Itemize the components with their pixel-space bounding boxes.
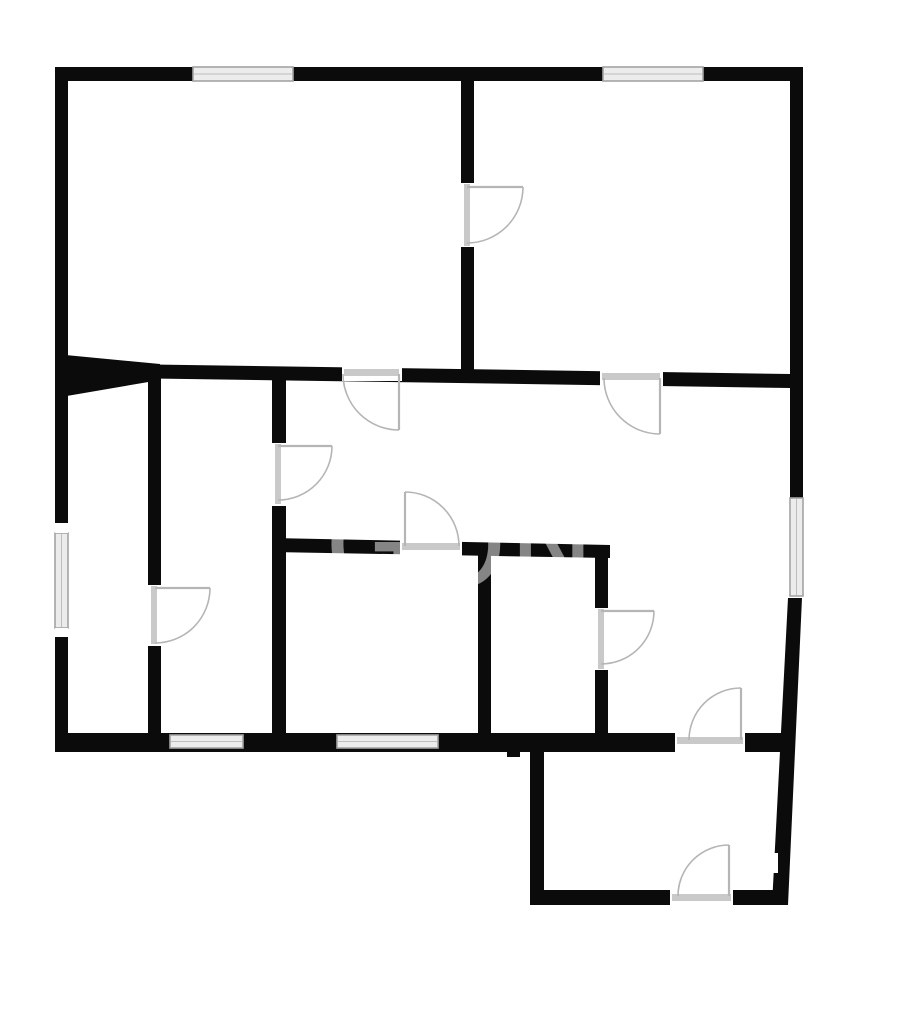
wall-segment (272, 376, 286, 733)
door-threshold (464, 184, 470, 246)
wall-segment (55, 67, 68, 752)
wall-notch (771, 853, 778, 873)
door-threshold (677, 737, 743, 744)
door-threshold (275, 444, 281, 504)
wall-notch (55, 523, 68, 533)
wall-notch (55, 628, 68, 637)
wall-segment (530, 752, 544, 905)
door-threshold (672, 894, 731, 901)
wall-segment (530, 890, 788, 905)
door-threshold (402, 543, 460, 550)
door-threshold (344, 369, 399, 376)
door-threshold (598, 609, 604, 669)
door-threshold (602, 373, 660, 380)
door-threshold (151, 586, 157, 644)
floor-plan-svg: GON (0, 0, 918, 1024)
wall-segment (507, 745, 520, 757)
floor-plan: GON (0, 0, 918, 1024)
wall-segment (148, 376, 161, 733)
wall-segment (790, 67, 803, 498)
